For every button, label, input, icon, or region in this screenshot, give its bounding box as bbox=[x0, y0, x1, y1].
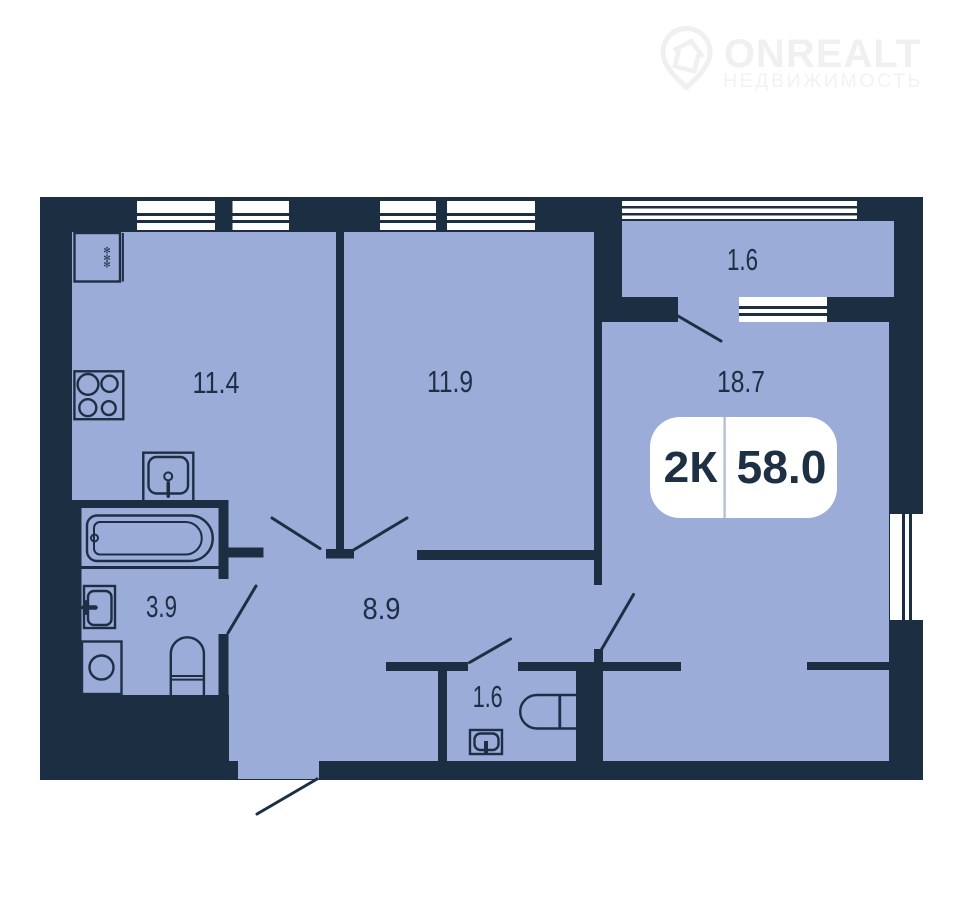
svg-text:8.9: 8.9 bbox=[363, 592, 401, 626]
svg-text:58.0: 58.0 bbox=[737, 441, 827, 493]
svg-text:11.9: 11.9 bbox=[427, 365, 473, 399]
svg-text:11.4: 11.4 bbox=[193, 366, 240, 400]
svg-text:2К: 2К bbox=[664, 443, 718, 492]
svg-text:3.9: 3.9 bbox=[146, 590, 177, 624]
svg-text:1.6: 1.6 bbox=[727, 243, 758, 277]
svg-text:✻: ✻ bbox=[103, 260, 111, 270]
svg-text:1.6: 1.6 bbox=[473, 680, 503, 714]
svg-text:18.7: 18.7 bbox=[717, 365, 765, 399]
svg-text:НЕДВИЖИМОСТЬ: НЕДВИЖИМОСТЬ bbox=[723, 70, 923, 92]
